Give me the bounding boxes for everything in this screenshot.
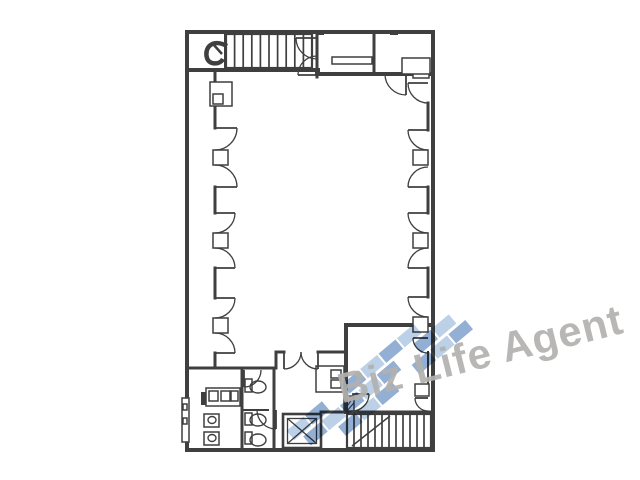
column-mark-top-2 [316, 30, 324, 35]
door-se-room-2-arc [415, 398, 428, 411]
wash-basin-3 [231, 391, 238, 401]
door-right-2-arc [408, 130, 428, 150]
door-left-1-arc [215, 128, 237, 150]
wall-niche-inner [213, 94, 223, 104]
column-mark-right-3 [431, 272, 435, 284]
pilaster-left-3 [213, 318, 228, 333]
door-right-3-arc [408, 167, 428, 187]
column-mark-left-2 [185, 192, 189, 204]
door-left-4-arc [215, 248, 235, 268]
door-right-1-arc [408, 83, 428, 103]
column-mark-left-1 [185, 112, 189, 124]
exterior-shaft-box-1 [183, 404, 187, 410]
column-mark-top-3 [390, 30, 398, 35]
door-left-3-arc [215, 213, 235, 233]
door-right-4-arc [408, 213, 428, 233]
room-b-niche [402, 58, 430, 74]
door-left-5-arc [215, 298, 235, 318]
stair-direction-marker [206, 43, 227, 63]
door-right-5-arc [408, 248, 428, 268]
floor-plan-page: Biz Life Agent [0, 0, 640, 480]
pilaster-right-1 [413, 150, 428, 165]
door-left-6-arc [215, 333, 235, 353]
double-door-left-arc [284, 352, 301, 369]
pilaster-left-2 [213, 233, 228, 248]
column-mark-right-2 [431, 192, 435, 204]
column-mark-right-1 [431, 112, 435, 124]
wash-basin-2 [221, 391, 230, 401]
door-left-2-arc [215, 165, 237, 187]
pilaster-left-1 [213, 150, 228, 165]
room-counter [332, 57, 372, 64]
exterior-shaft-box-2 [183, 418, 187, 424]
pilaster-right-2 [413, 233, 428, 248]
wash-basin-1 [209, 391, 218, 401]
door-top-room-arc [385, 74, 406, 95]
column-mark-left-3 [185, 272, 189, 284]
